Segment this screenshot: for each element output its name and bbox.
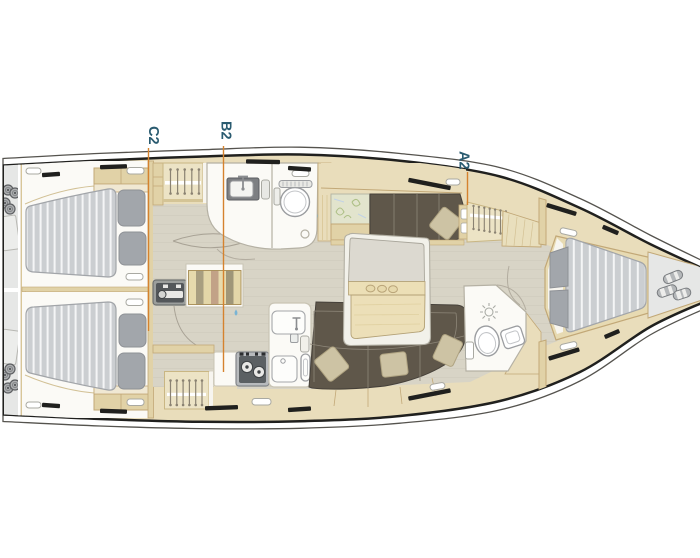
svg-text:A2: A2 [456,151,472,170]
svg-text:B2: B2 [218,121,234,140]
svg-text:C2: C2 [145,126,161,145]
